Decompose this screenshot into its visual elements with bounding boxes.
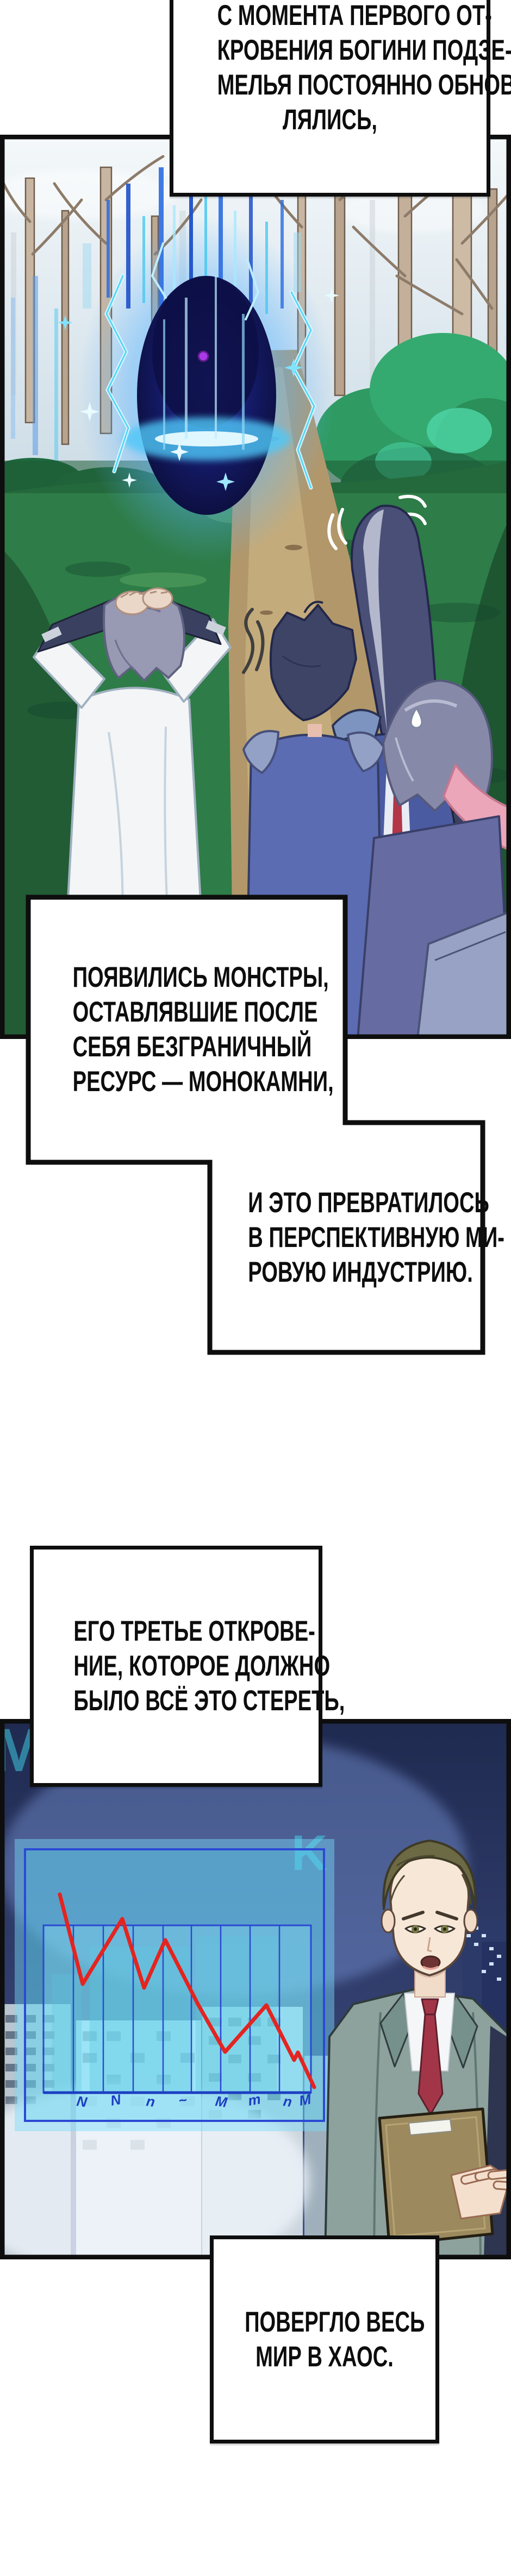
narration-line: ОСТАВЛЯВШИЕ ПОСЛЕ (73, 995, 301, 1030)
narration-box-3: И ЭТО ПРЕВРАТИЛОСЬ В ПЕРСПЕКТИВНУЮ МИ- Р… (210, 1123, 483, 1352)
narration-text: ЕГО ТРЕТЬЕ ОТКРОВЕ- НИЕ, КОТОРОЕ ДОЛЖНО … (73, 1614, 278, 1718)
narration-line: ПОВЕРГЛО ВЕСЬ (245, 2305, 404, 2340)
narration-line: КРОВЕНИЯ БОГИНИ ПОДЗЕ- (217, 33, 443, 68)
narration-line: ПОЯВИЛИСЬ МОНСТРЫ, (73, 960, 301, 995)
portal-gem (198, 351, 208, 361)
narration-text: С МОМЕНТА ПЕРВОГО ОТ- КРОВЕНИЯ БОГИНИ ПО… (217, 0, 443, 137)
narration-line: МЕЛЬЯ ПОСТОЯННО ОБНОВ- (217, 68, 443, 103)
news-panel: M K (0, 1719, 511, 2259)
narration-box-1: С МОМЕНТА ПЕРВОГО ОТ- КРОВЕНИЯ БОГИНИ ПО… (170, 0, 490, 197)
comic-page: M K (0, 0, 511, 2576)
anchor-ear (464, 1910, 477, 1932)
narration-line: БЫЛО ВСЁ ЭТО СТЕРЕТЬ, (73, 1684, 278, 1718)
narration-line: СЕБЯ БЕЗГРАНИЧНЫЙ (73, 1030, 301, 1065)
anchor-ear (382, 1910, 395, 1932)
narration-text: ПОЯВИЛИСЬ МОНСТРЫ, ОСТАВЛЯВШИЕ ПОСЛЕ СЕБ… (73, 960, 301, 1099)
anchor-tie-knot (422, 1999, 438, 2014)
narration-box-4: ЕГО ТРЕТЬЕ ОТКРОВЕ- НИЕ, КОТОРОЕ ДОЛЖНО … (30, 1546, 322, 1787)
narration-text: И ЭТО ПРЕВРАТИЛОСЬ В ПЕРСПЕКТИВНУЮ МИ- Р… (248, 1186, 444, 1290)
man2-neck (308, 724, 322, 737)
narration-line: НИЕ, КОТОРОЕ ДОЛЖНО (73, 1649, 278, 1684)
narration-line: И ЭТО ПРЕВРАТИЛОСЬ (248, 1186, 444, 1220)
stock-chart: NNn~MmnM (20, 1844, 329, 2126)
narration-line: РЕСУРС — МОНОКАМНИ, (73, 1065, 301, 1099)
man1-hand-right (143, 588, 172, 609)
narration-line: ЛЯЛИСЬ, (217, 103, 443, 137)
narration-line: РОВУЮ ИНДУСТРИЮ. (248, 1255, 444, 1290)
narration-box-5: ПОВЕРГЛО ВЕСЬ МИР В ХАОС. (210, 2235, 439, 2443)
narration-line: В ПЕРСПЕКТИВНУЮ МИ- (248, 1220, 444, 1255)
narration-line: С МОМЕНТА ПЕРВОГО ОТ- (217, 0, 443, 33)
narration-line: МИР В ХАОС. (245, 2340, 404, 2375)
narration-text: ПОВЕРГЛО ВЕСЬ МИР В ХАОС. (245, 2305, 404, 2375)
narration-line: ЕГО ТРЕТЬЕ ОТКРОВЕ- (73, 1614, 278, 1649)
